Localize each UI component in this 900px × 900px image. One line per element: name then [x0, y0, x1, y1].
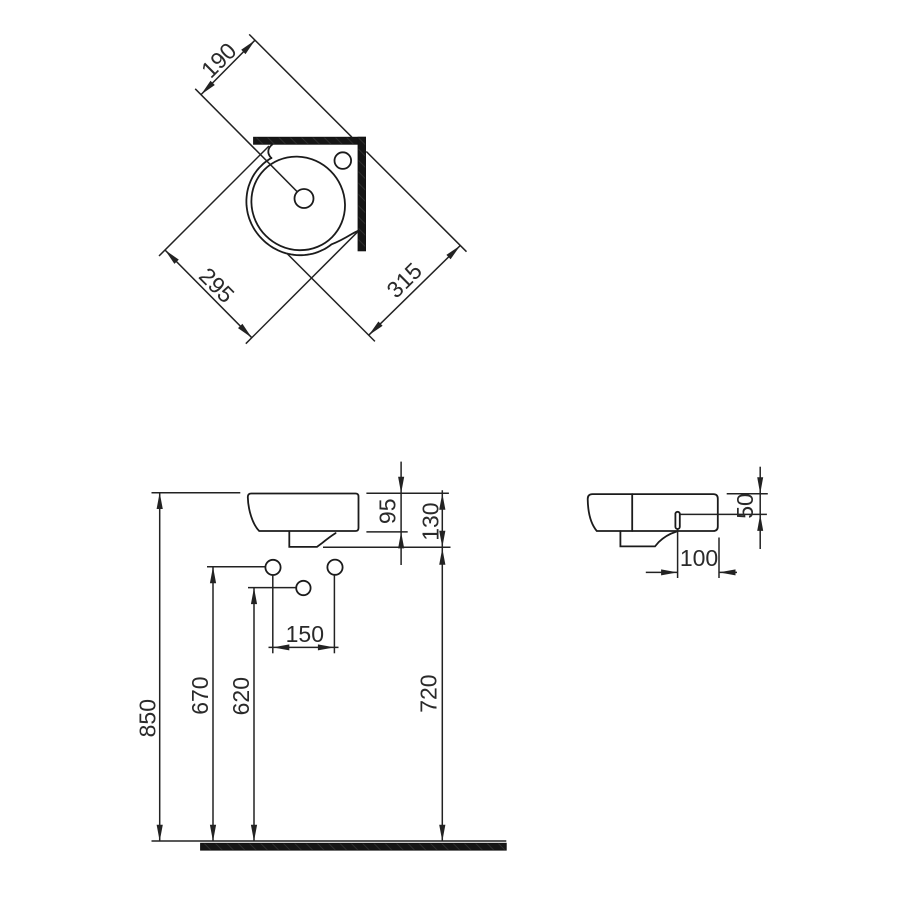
svg-text:50: 50 — [732, 493, 758, 519]
svg-text:130: 130 — [417, 502, 443, 540]
svg-text:620: 620 — [228, 677, 254, 715]
svg-text:850: 850 — [135, 699, 161, 737]
svg-text:95: 95 — [375, 499, 401, 525]
svg-text:150: 150 — [286, 621, 324, 647]
svg-text:100: 100 — [680, 545, 718, 571]
svg-text:720: 720 — [415, 674, 441, 712]
svg-text:670: 670 — [187, 676, 213, 714]
